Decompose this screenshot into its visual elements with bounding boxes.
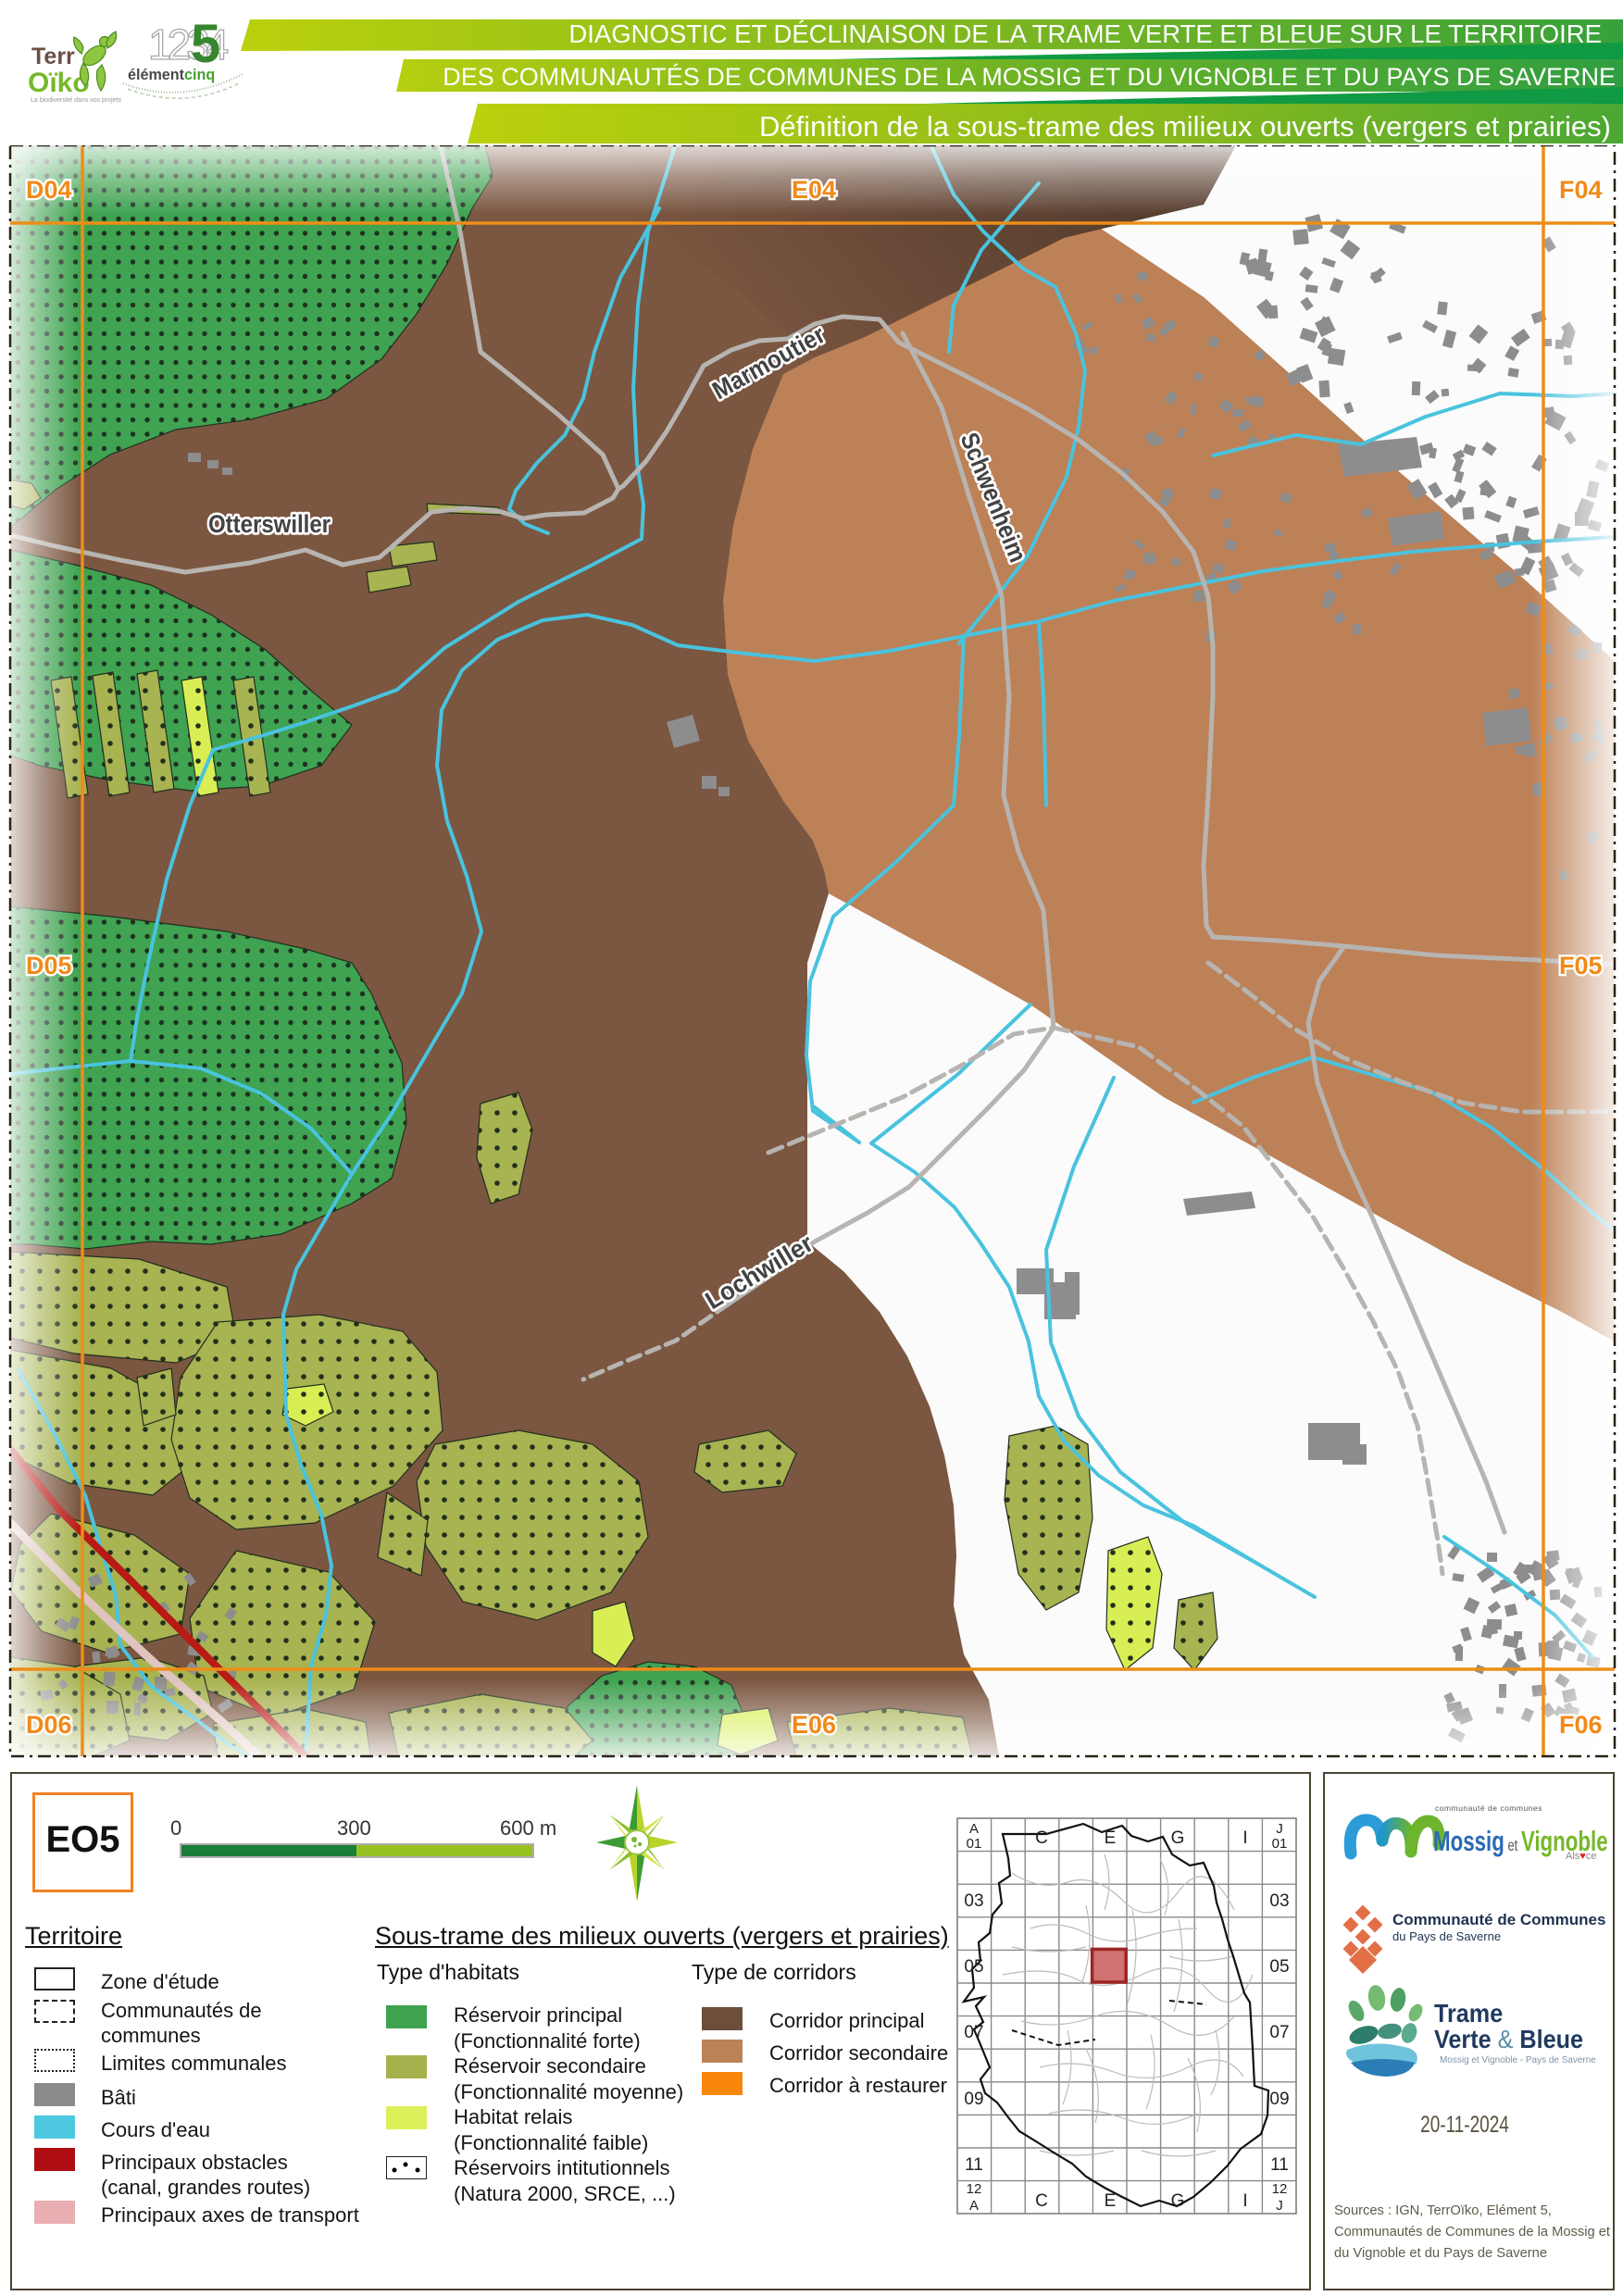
- svg-text:09: 09: [964, 2090, 983, 2109]
- svg-text:D06: D06: [26, 1711, 72, 1739]
- svg-text:11: 11: [1270, 2155, 1289, 2175]
- svg-text:Communautés de Communes de la: Communautés de Communes de la Mossig et: [1334, 2225, 1610, 2240]
- svg-text:05: 05: [964, 1957, 983, 1977]
- svg-text:du Vignoble et du Pays de Save: du Vignoble et du Pays de Saverne: [1334, 2246, 1547, 2261]
- svg-text:DES COMMUNAUTÉS DE COMMUNES DE: DES COMMUNAUTÉS DE COMMUNES DE LA MOSSIG…: [443, 63, 1616, 91]
- svg-text:07: 07: [964, 2023, 983, 2042]
- svg-text:DIAGNOSTIC ET DÉCLINAISON DE L: DIAGNOSTIC ET DÉCLINAISON DE LA TRAME VE…: [568, 19, 1602, 48]
- svg-text:Sources : IGN, TerrOïko, Eléme: Sources : IGN, TerrOïko, Elément 5,: [1334, 2203, 1552, 2218]
- svg-text:12: 12: [967, 2181, 982, 2197]
- svg-text:Als♥ce: Als♥ce: [1566, 1851, 1596, 1862]
- svg-text:D05: D05: [26, 952, 72, 980]
- svg-text:La biodiversité dans vos proje: La biodiversité dans vos projets: [31, 97, 122, 104]
- svg-text:Terr: Terr: [31, 44, 75, 69]
- svg-text:F05: F05: [1559, 952, 1603, 980]
- svg-text:I: I: [1242, 2191, 1247, 2211]
- svg-text:A: A: [969, 2198, 979, 2214]
- svg-text:01: 01: [967, 1836, 982, 1852]
- svg-text:03: 03: [1269, 1891, 1289, 1911]
- svg-text:du Pays de Saverne: du Pays de Saverne: [1392, 1929, 1501, 1943]
- svg-text:F04: F04: [1559, 176, 1603, 204]
- svg-text:20-11-2024: 20-11-2024: [1420, 2111, 1509, 2137]
- svg-text:J: J: [1276, 2198, 1283, 2214]
- svg-text:communauté de communes: communauté de communes: [1435, 1803, 1542, 1813]
- svg-text:G: G: [1171, 1828, 1185, 1848]
- svg-text:J: J: [1276, 1821, 1283, 1837]
- svg-text:Mossig et Vignoble - Pays de S: Mossig et Vignoble - Pays de Saverne: [1440, 2055, 1596, 2065]
- svg-text:F06: F06: [1559, 1711, 1603, 1739]
- svg-text:C: C: [1035, 2191, 1048, 2211]
- svg-text:Définition de la sous-trame de: Définition de la sous-trame des milieux …: [759, 110, 1611, 143]
- svg-text:Communauté de Communes: Communauté de Communes: [1392, 1911, 1605, 1928]
- svg-text:C: C: [1035, 1828, 1048, 1848]
- svg-text:05: 05: [1269, 1957, 1289, 1977]
- svg-text:D04: D04: [26, 176, 72, 204]
- svg-text:03: 03: [964, 1891, 983, 1911]
- svg-text:élémentcinq: élémentcinq: [128, 66, 215, 83]
- svg-text:12: 12: [1272, 2181, 1288, 2197]
- svg-text:E: E: [1105, 2191, 1117, 2211]
- svg-text:A: A: [969, 1821, 979, 1837]
- svg-text:G: G: [1171, 2191, 1185, 2211]
- svg-text:01: 01: [1272, 1836, 1288, 1852]
- svg-text:09: 09: [1269, 2090, 1289, 2109]
- svg-text:Verte & Bleue: Verte & Bleue: [1434, 2025, 1583, 2054]
- svg-text:E: E: [1105, 1828, 1117, 1848]
- svg-text:E04: E04: [792, 176, 836, 204]
- svg-text:11: 11: [965, 2155, 983, 2175]
- svg-text:07: 07: [1269, 2023, 1289, 2042]
- svg-text:Otterswiller: Otterswiller: [208, 510, 331, 538]
- svg-text:I: I: [1242, 1828, 1247, 1848]
- svg-text:Trame: Trame: [1434, 1999, 1503, 2028]
- svg-text:E06: E06: [792, 1711, 836, 1739]
